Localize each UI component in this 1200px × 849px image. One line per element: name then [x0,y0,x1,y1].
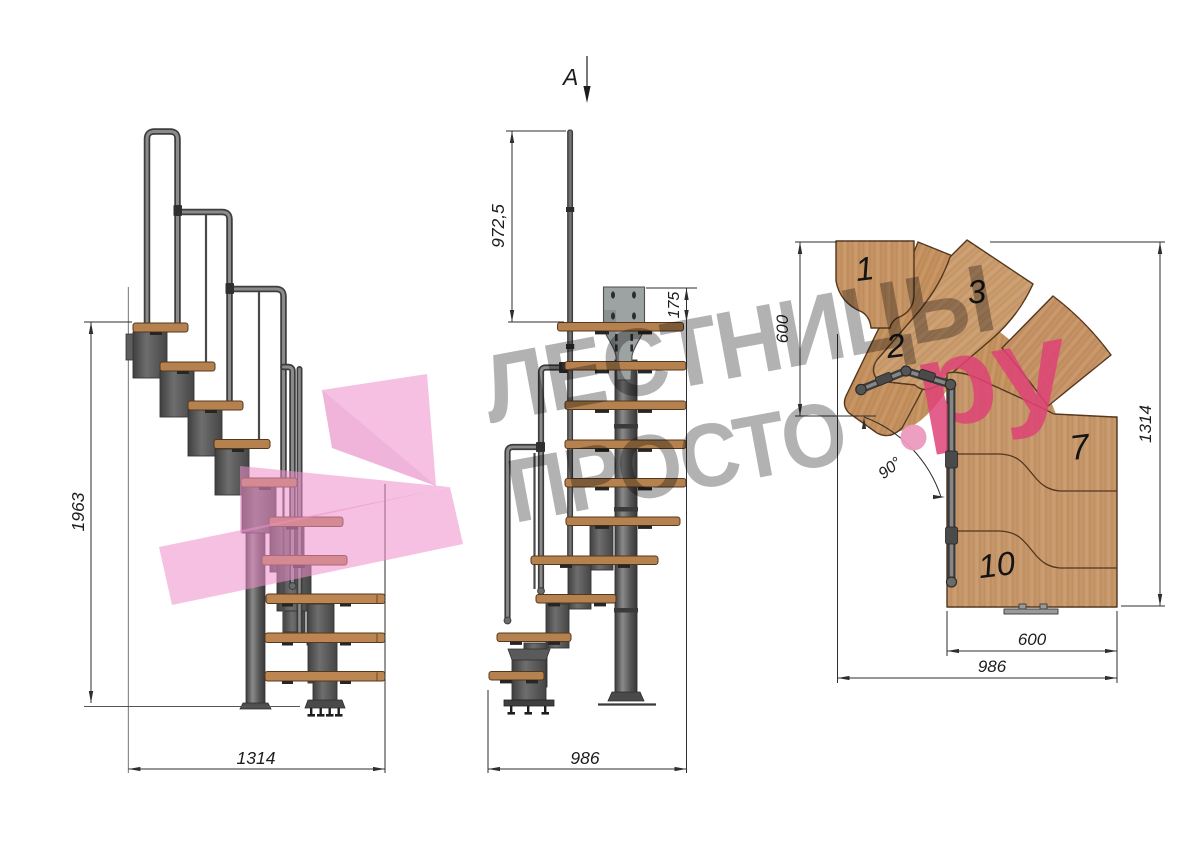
svg-text:10: 10 [976,544,1018,585]
svg-text:A: A [561,64,578,90]
svg-text:1314: 1314 [237,748,276,768]
svg-text:600: 600 [1018,630,1047,649]
svg-text:1314: 1314 [1136,405,1155,443]
svg-text:986: 986 [978,657,1007,676]
svg-text:972,5: 972,5 [488,204,508,248]
svg-text:986: 986 [570,748,599,768]
svg-text:1963: 1963 [68,492,88,531]
